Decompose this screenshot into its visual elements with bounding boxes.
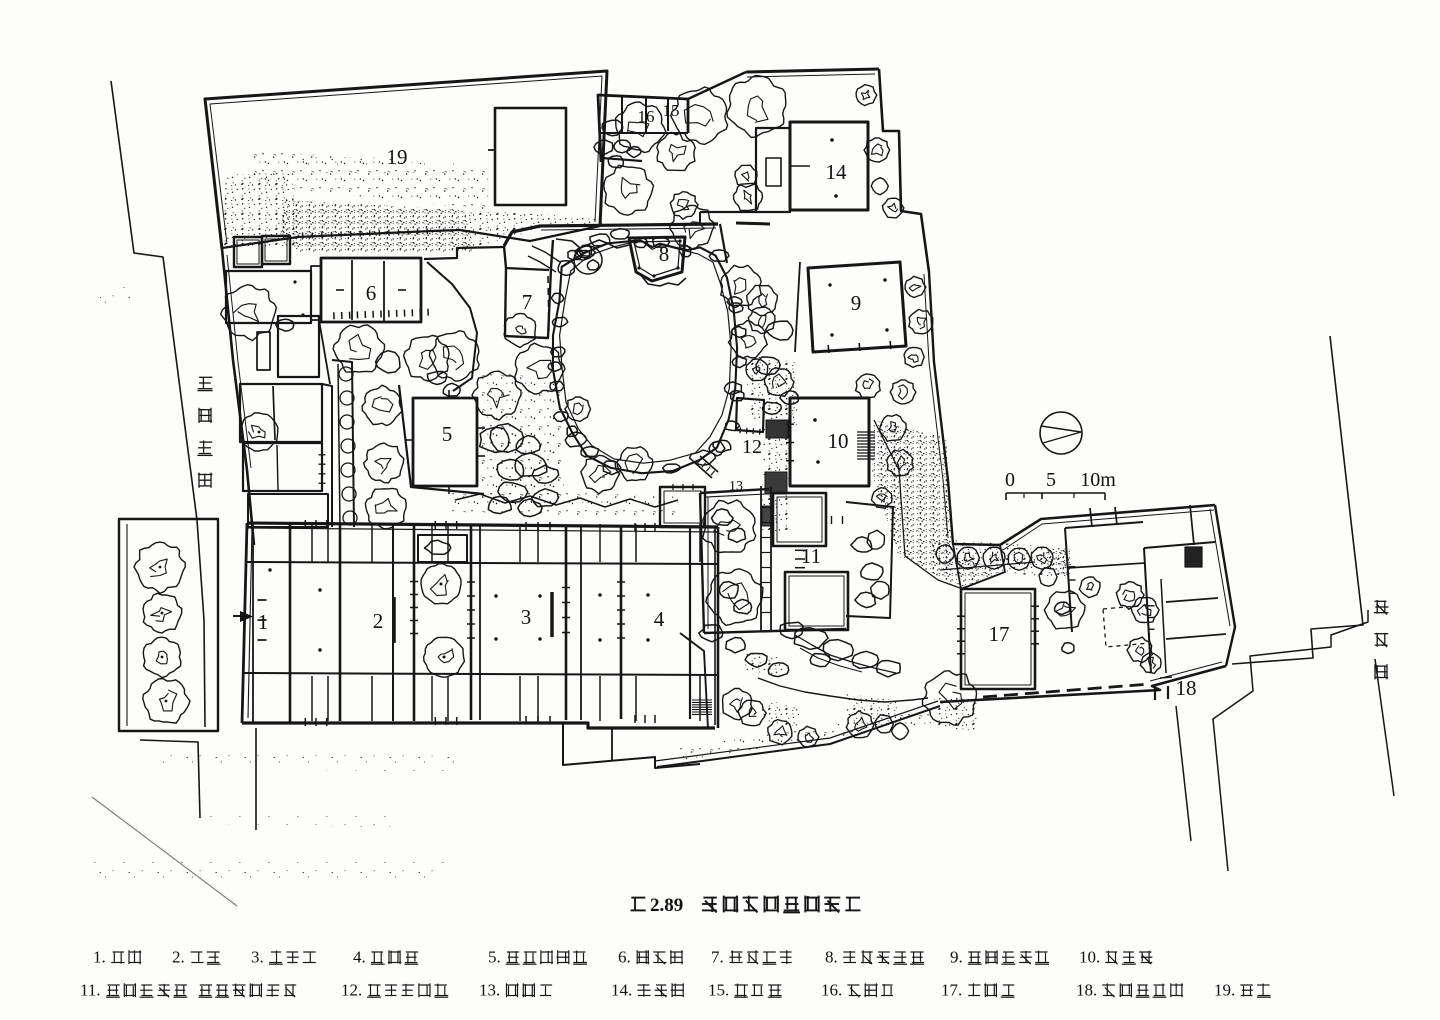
svg-text:19: 19 xyxy=(387,145,408,169)
svg-text:12: 12 xyxy=(742,436,762,458)
svg-text:2: 2 xyxy=(373,609,384,633)
svg-text:9.: 9. xyxy=(950,948,963,967)
svg-text:7.: 7. xyxy=(711,948,724,967)
svg-text:5.: 5. xyxy=(488,948,501,967)
svg-text:6.: 6. xyxy=(618,948,631,967)
svg-text:8.: 8. xyxy=(825,948,838,967)
svg-text:5: 5 xyxy=(1046,469,1056,491)
svg-text:2.89: 2.89 xyxy=(650,895,683,916)
svg-text:5: 5 xyxy=(442,422,453,446)
svg-text:14.: 14. xyxy=(611,981,632,1000)
svg-text:10: 10 xyxy=(828,429,849,453)
svg-text:10m: 10m xyxy=(1080,469,1116,491)
svg-text:19.: 19. xyxy=(1214,981,1235,1000)
svg-text:9: 9 xyxy=(851,291,862,315)
svg-text:18: 18 xyxy=(1176,676,1197,700)
svg-text:13: 13 xyxy=(729,479,743,494)
svg-text:15.: 15. xyxy=(708,981,729,1000)
svg-text:0: 0 xyxy=(1005,469,1015,491)
svg-text:12.: 12. xyxy=(341,981,362,1000)
svg-text:3.: 3. xyxy=(251,948,264,967)
svg-text:2.: 2. xyxy=(172,948,185,967)
svg-text:18.: 18. xyxy=(1076,981,1097,1000)
svg-text:6: 6 xyxy=(366,281,377,305)
svg-text:1.: 1. xyxy=(93,948,106,967)
svg-text:7: 7 xyxy=(522,290,533,314)
svg-text:4.: 4. xyxy=(353,948,366,967)
svg-text:10.: 10. xyxy=(1079,948,1100,967)
svg-text:17.: 17. xyxy=(941,981,962,1000)
svg-text:8: 8 xyxy=(659,242,670,266)
svg-text:13.: 13. xyxy=(479,981,500,1000)
svg-text:3: 3 xyxy=(521,605,532,629)
svg-text:14: 14 xyxy=(826,160,848,184)
svg-text:4: 4 xyxy=(654,607,665,631)
svg-text:1: 1 xyxy=(258,610,269,634)
svg-text:11: 11 xyxy=(801,544,821,568)
svg-text:11.: 11. xyxy=(80,981,101,1000)
svg-text:17: 17 xyxy=(989,622,1010,646)
svg-text:16.: 16. xyxy=(821,981,842,1000)
